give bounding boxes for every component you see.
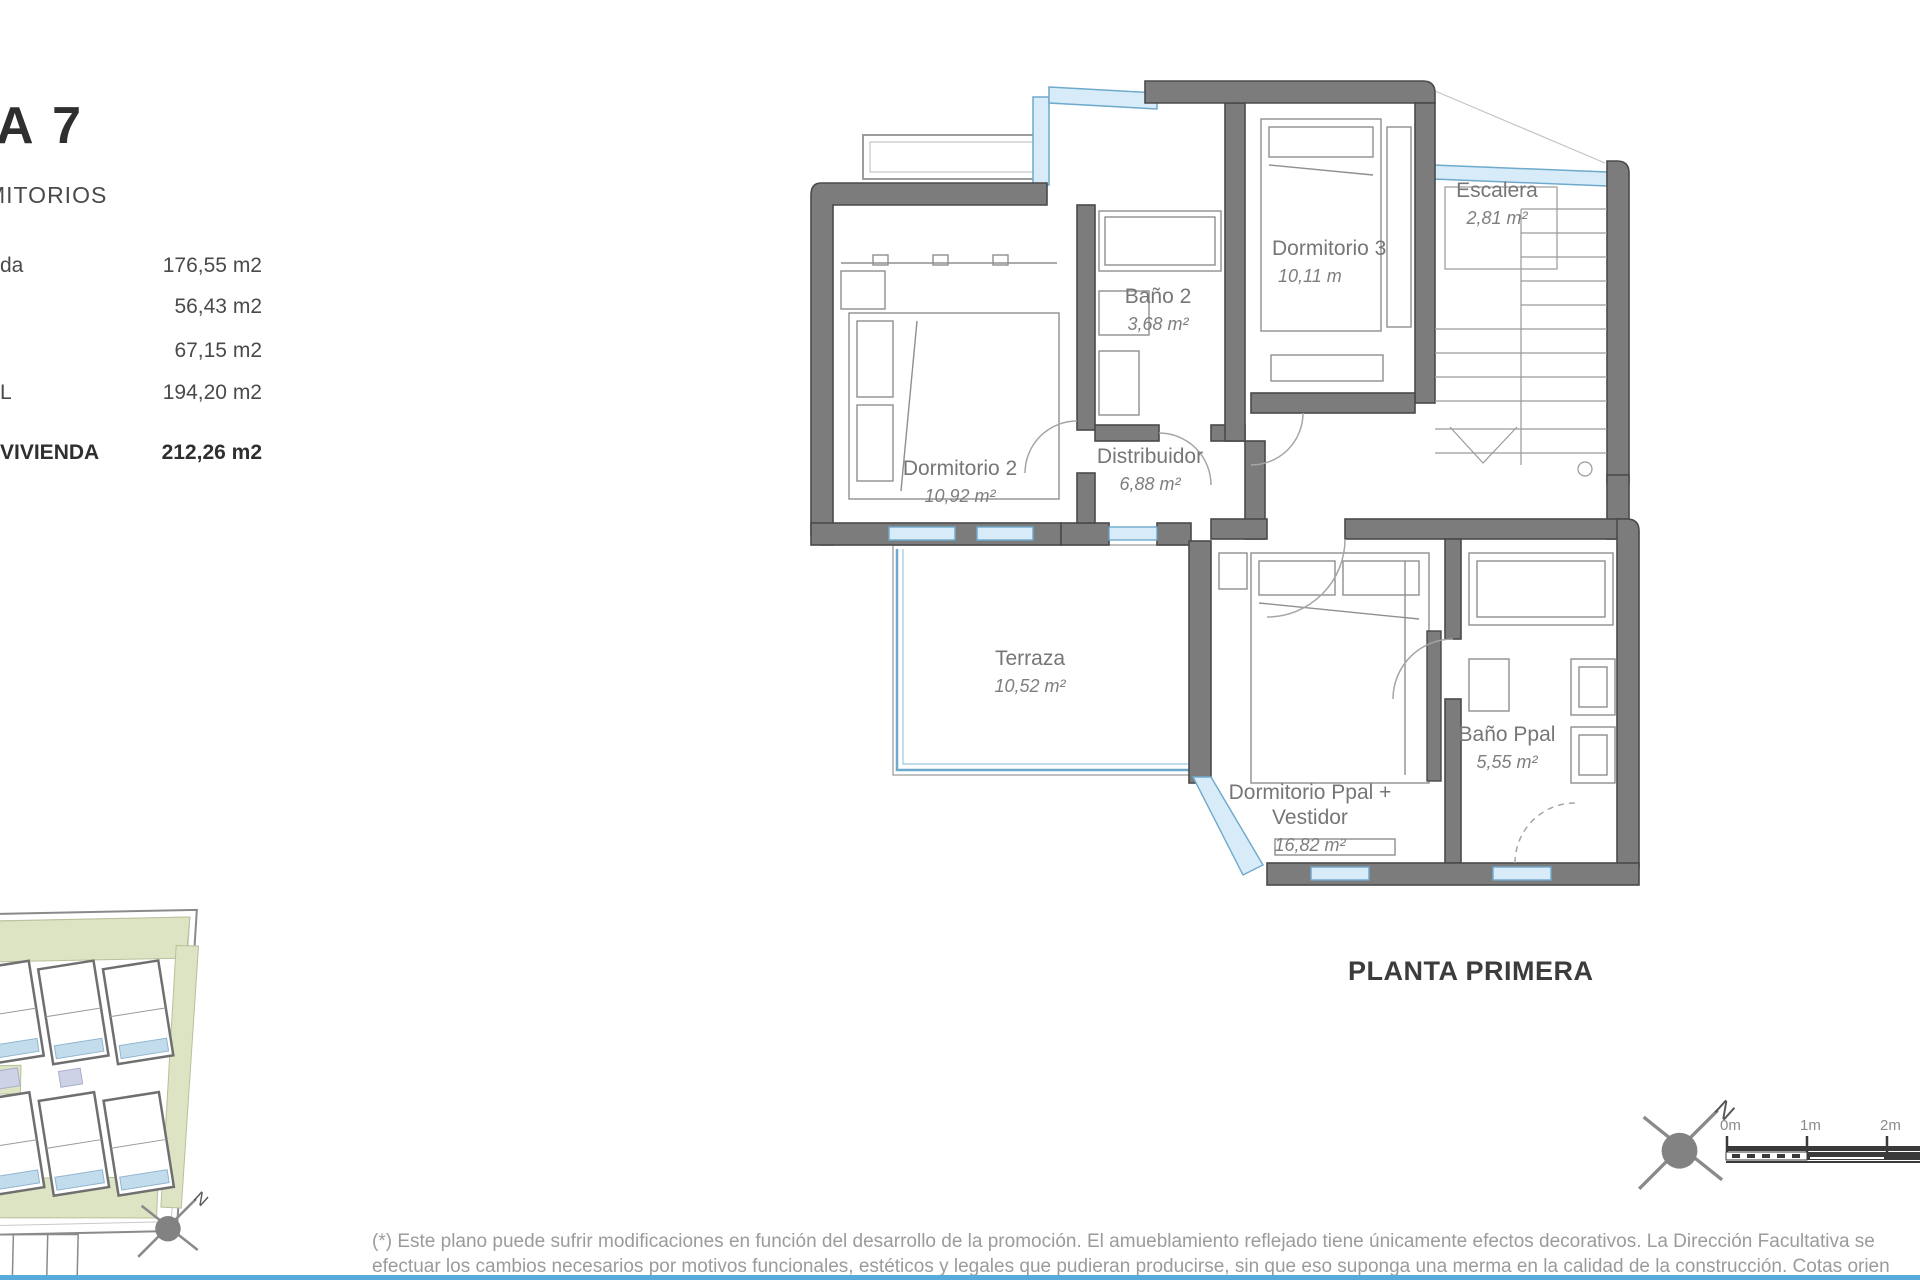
plan-caption: PLANTA PRIMERA	[1348, 956, 1594, 987]
summary-row: 56,43 m2	[0, 295, 262, 319]
room-area: 5,55 m²	[1459, 750, 1556, 775]
room-name: Dormitorio 2	[903, 456, 1017, 481]
disclaimer-line-1: (*) Este plano puede sufrir modificacion…	[372, 1229, 1920, 1254]
room-name: Baño Ppal	[1459, 722, 1556, 747]
summary-row-value: 212,26 m2	[162, 441, 262, 465]
summary-row: 67,15 m2	[0, 339, 262, 363]
summary-row-label: VIVIENDA	[0, 441, 99, 465]
room-label-escalera: Escalera 2,81 m²	[1456, 178, 1538, 231]
unit-subtitle: MITORIOS	[0, 182, 107, 209]
room-name: Terraza	[994, 646, 1065, 671]
summary-row-value: 194,20 m2	[163, 381, 262, 405]
north-compass-icon: N	[128, 1182, 213, 1267]
north-letter: N	[190, 1188, 212, 1210]
summary-row-value: 56,43 m2	[174, 295, 262, 319]
scale-label-0m: 0m	[1720, 1117, 1741, 1134]
room-area: 10,52 m²	[994, 674, 1065, 699]
room-name: Distribuidor	[1097, 444, 1203, 469]
page: A 7 MITORIOS da 176,55 m2 56,43 m2 67,15…	[0, 0, 1920, 1280]
room-area: 2,81 m²	[1456, 206, 1538, 231]
summary-row: L 194,20 m2	[0, 381, 262, 405]
room-name: Escalera	[1456, 178, 1538, 203]
room-label-bano-2: Baño 2 3,68 m²	[1125, 284, 1192, 337]
footer-accent-bar	[0, 1275, 1920, 1280]
room-name: Baño 2	[1125, 284, 1192, 309]
disclaimer-text: (*) Este plano puede sufrir modificacion…	[372, 1229, 1920, 1279]
room-name: Dormitorio Ppal + Vestidor	[1208, 780, 1413, 830]
summary-row-total: VIVIENDA 212,26 m2	[0, 441, 262, 465]
room-area: 10,92 m²	[903, 484, 1017, 509]
room-area: 10,11 m	[1272, 264, 1386, 289]
scale-label-2m: 2m	[1880, 1117, 1901, 1134]
room-label-dormitorio-3: Dormitorio 3 10,11 m	[1272, 236, 1386, 289]
room-label-dormitorio-2: Dormitorio 2 10,92 m²	[903, 456, 1017, 509]
room-area: 16,82 m²	[1208, 833, 1413, 858]
scale-bar: 0m 1m 2m	[1720, 1116, 1920, 1166]
summary-row-label: L	[0, 381, 12, 405]
summary-row-value: 176,55 m2	[163, 254, 262, 278]
scale-label-1m: 1m	[1800, 1117, 1821, 1134]
unit-title: A 7	[0, 96, 84, 156]
room-name: Dormitorio 3	[1272, 236, 1386, 261]
room-area: 6,88 m²	[1097, 472, 1203, 497]
summary-row: da 176,55 m2	[0, 254, 262, 278]
room-label-terraza: Terraza 10,52 m²	[994, 646, 1065, 699]
room-label-distribuidor: Distribuidor 6,88 m²	[1097, 444, 1203, 497]
room-label-dormitorio-ppal: Dormitorio Ppal + Vestidor 16,82 m²	[1208, 780, 1413, 858]
room-area: 3,68 m²	[1125, 312, 1192, 337]
summary-row-label: da	[0, 254, 23, 278]
room-label-bano-ppal: Baño Ppal 5,55 m²	[1459, 722, 1556, 775]
summary-row-value: 67,15 m2	[174, 339, 262, 363]
